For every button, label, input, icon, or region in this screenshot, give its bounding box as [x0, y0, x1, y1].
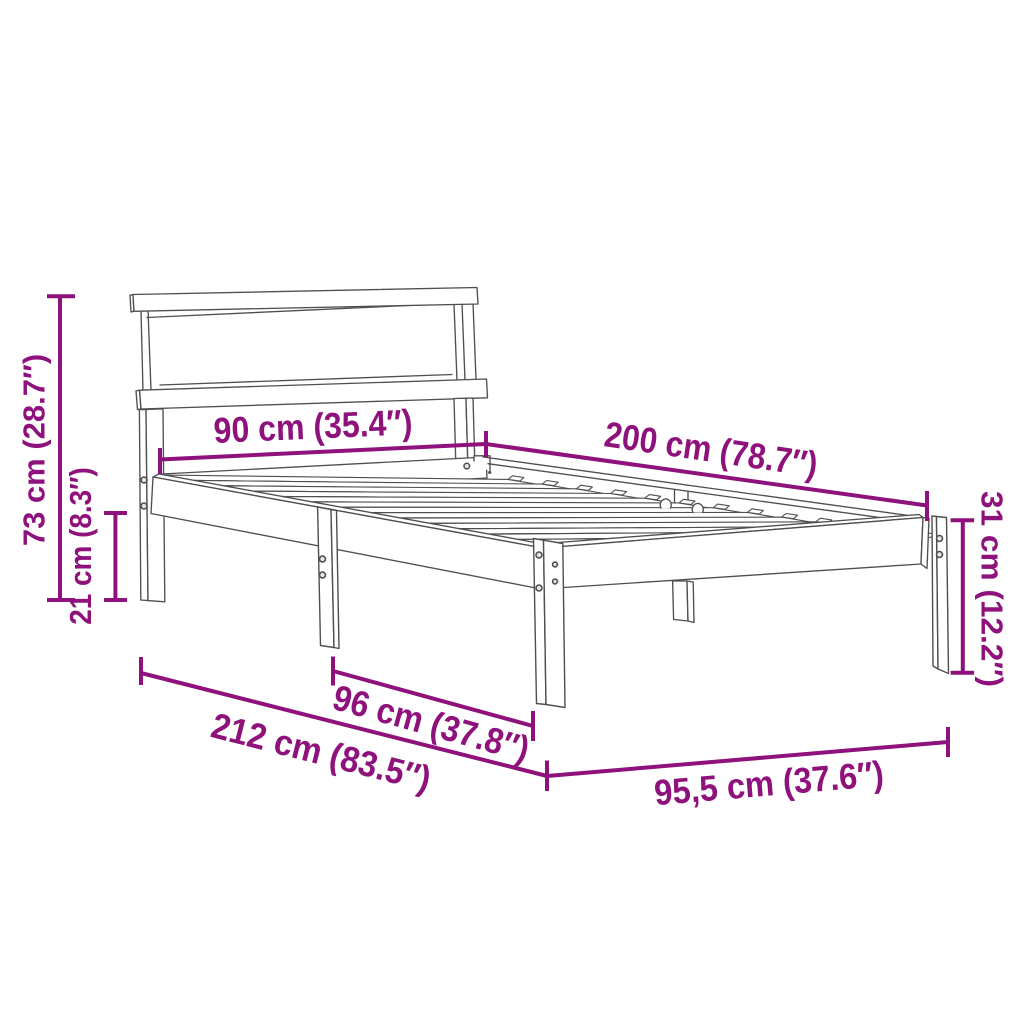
svg-text:73 cm (28.7″): 73 cm (28.7″) — [17, 354, 52, 546]
svg-text:21 cm (8.3″): 21 cm (8.3″) — [64, 467, 99, 625]
svg-text:31 cm (12.2″): 31 cm (12.2″) — [975, 491, 1010, 687]
